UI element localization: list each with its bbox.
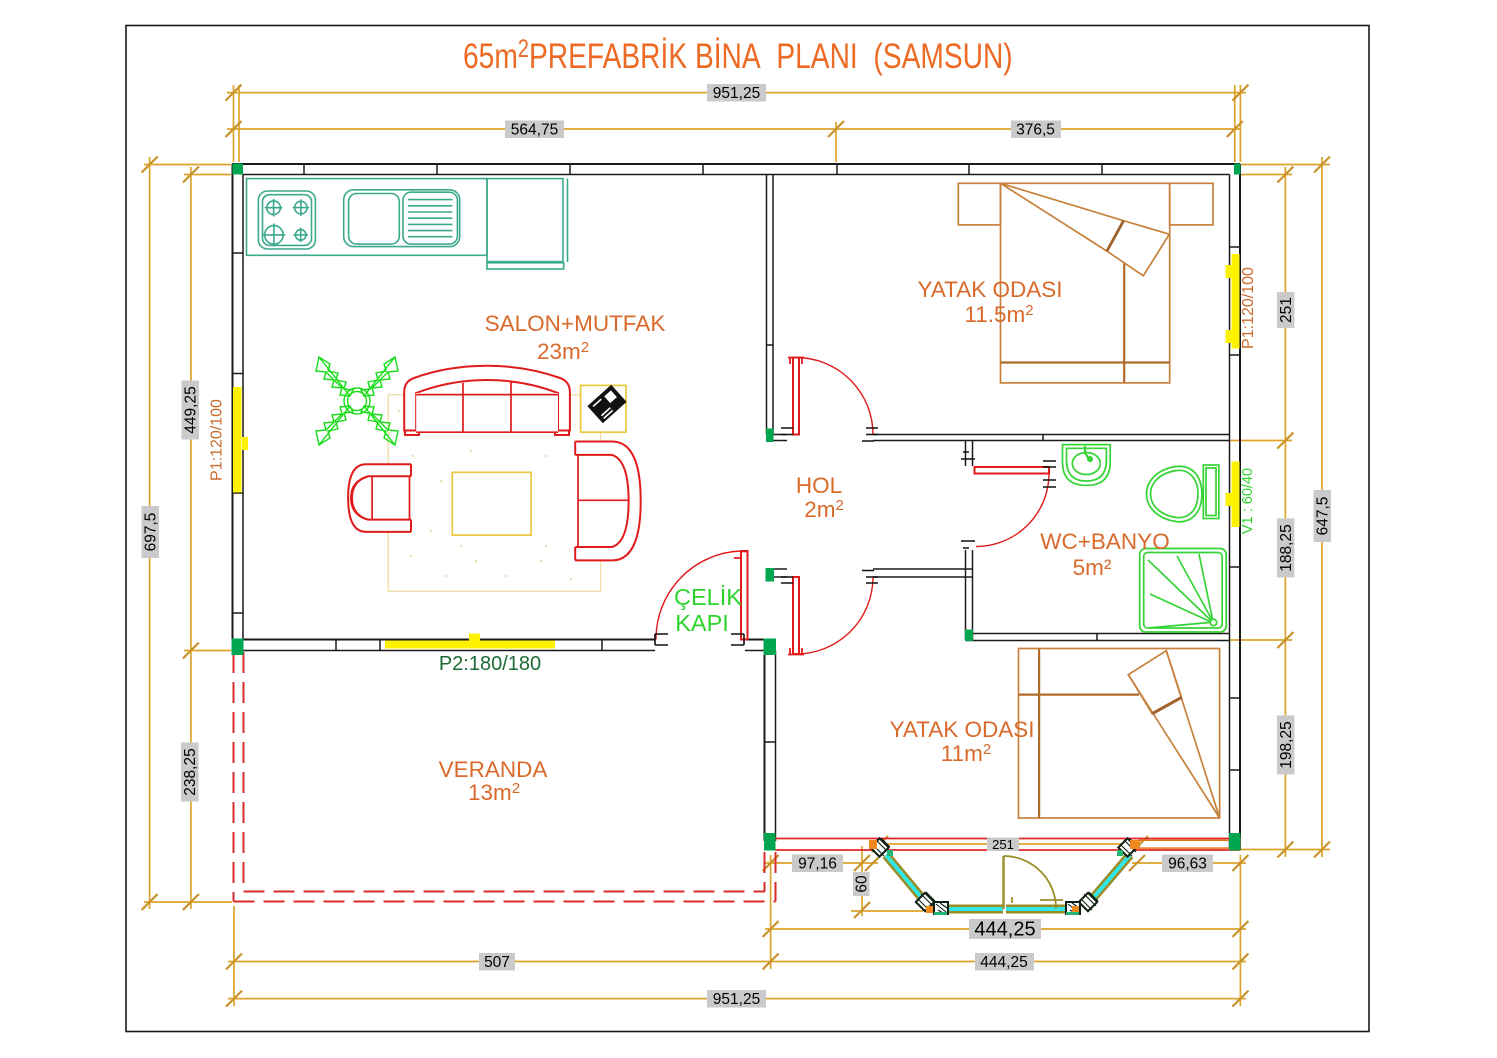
svg-text:2m2: 2m2	[804, 497, 844, 522]
svg-text:444,25: 444,25	[974, 919, 1035, 941]
svg-text:P1:120/100: P1:120/100	[209, 399, 226, 481]
svg-text:P1:120/100: P1:120/100	[1240, 267, 1257, 349]
svg-text:951,25: 951,25	[713, 991, 760, 1008]
svg-text:23m2: 23m2	[537, 339, 589, 364]
svg-text:697,5: 697,5	[143, 513, 160, 552]
svg-text:97,16: 97,16	[798, 856, 837, 873]
svg-text:238,25: 238,25	[182, 748, 199, 795]
svg-text:YATAK ODASI: YATAK ODASI	[917, 277, 1062, 302]
svg-text:951,25: 951,25	[713, 85, 760, 102]
svg-text:188,25: 188,25	[1278, 524, 1295, 571]
svg-text:KAPI: KAPI	[675, 610, 729, 636]
svg-text:251: 251	[1278, 297, 1295, 323]
svg-text:65m2PREFABRİK BİNA PLANI (SA: 65m2PREFABRİK BİNA PLANI (SAMSUN)	[463, 34, 1013, 76]
svg-text:444,25: 444,25	[980, 954, 1027, 971]
svg-text:647,5: 647,5	[1315, 497, 1332, 536]
svg-text:376,5: 376,5	[1016, 122, 1055, 139]
svg-text:P2:180/180: P2:180/180	[439, 653, 541, 675]
svg-text:HOL: HOL	[796, 473, 842, 498]
svg-text:SALON+MUTFAK: SALON+MUTFAK	[485, 311, 666, 336]
svg-text:564,75: 564,75	[511, 122, 558, 139]
svg-text:198,25: 198,25	[1278, 721, 1295, 768]
svg-text:11.5m2: 11.5m2	[964, 302, 1033, 327]
svg-text:96,63: 96,63	[1168, 856, 1207, 873]
svg-text:5m²: 5m²	[1073, 555, 1112, 580]
svg-text:13m2: 13m2	[468, 780, 520, 805]
svg-text:V1 : 60/40: V1 : 60/40	[1240, 468, 1256, 534]
svg-text:60: 60	[854, 875, 871, 893]
svg-text:507: 507	[484, 954, 510, 971]
svg-text:11m2: 11m2	[941, 741, 991, 766]
svg-text:449,25: 449,25	[183, 386, 200, 433]
svg-text:YATAK ODASI: YATAK ODASI	[889, 717, 1034, 742]
svg-text:251: 251	[992, 837, 1014, 852]
svg-text:VERANDA: VERANDA	[439, 757, 548, 782]
svg-text:WC+BANYO: WC+BANYO	[1040, 529, 1169, 554]
svg-text:ÇELİK: ÇELİK	[674, 584, 742, 610]
